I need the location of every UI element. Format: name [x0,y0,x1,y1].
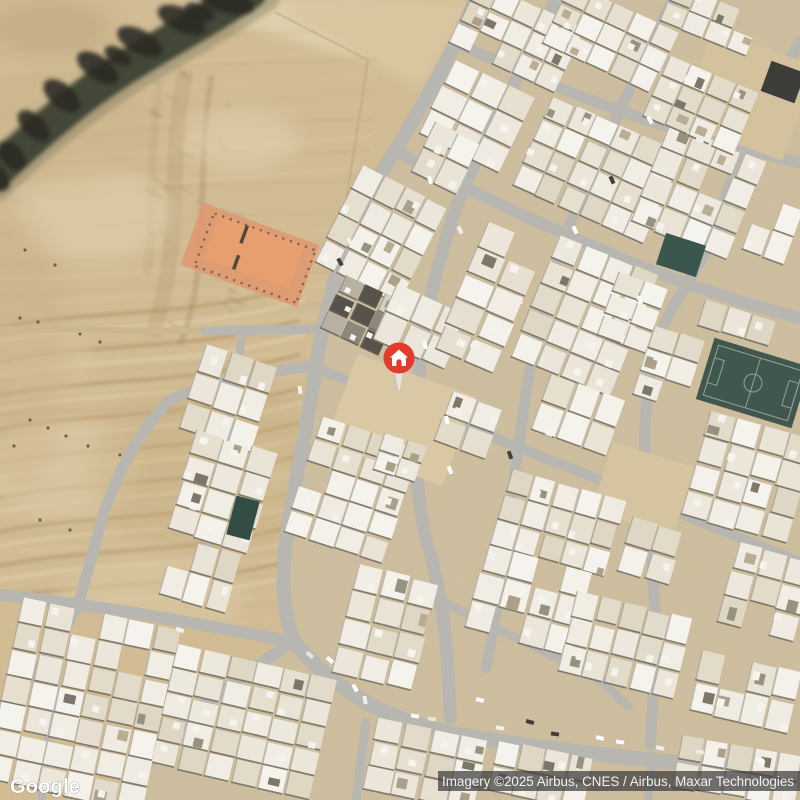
svg-text:Imagery ©2025 Airbus, CNES / A: Imagery ©2025 Airbus, CNES / Airbus, Max… [442,774,794,789]
svg-text:Google: Google [10,776,80,798]
